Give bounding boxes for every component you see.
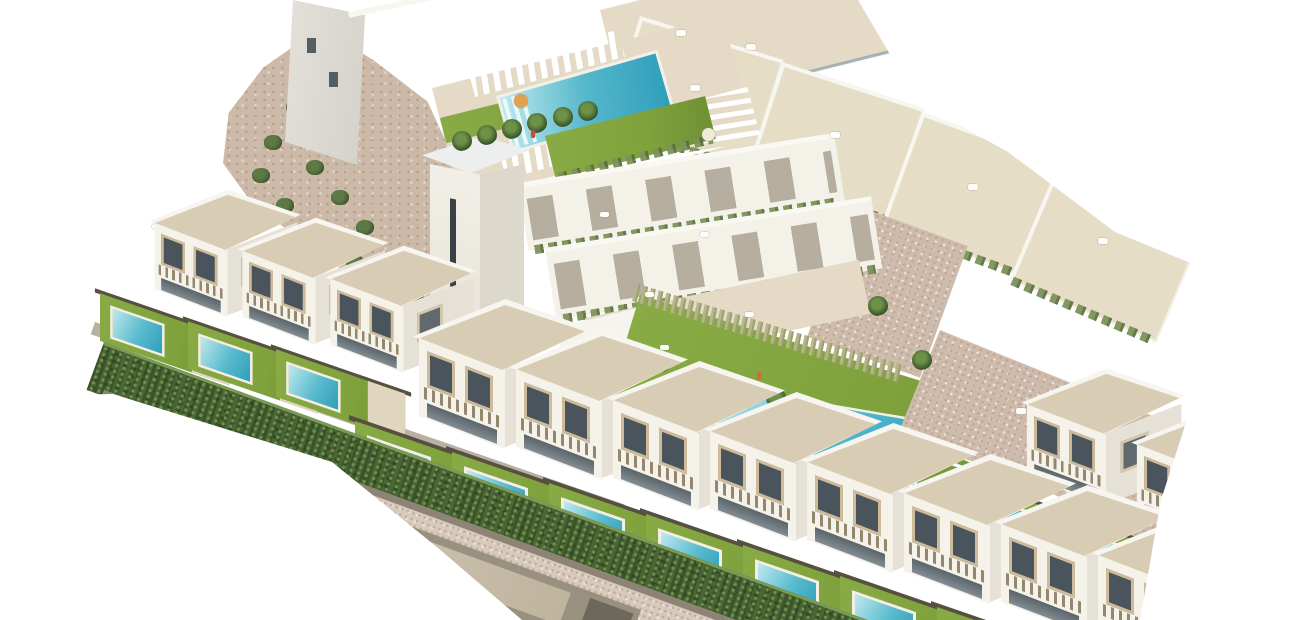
hanging-plants (1011, 277, 1156, 345)
palm-tree-icon (868, 296, 888, 316)
terrace-furniture (745, 312, 754, 317)
garage-opening (577, 598, 634, 620)
palm-tree-icon (912, 350, 932, 370)
terrace-furniture (830, 132, 840, 138)
shrub-icon (306, 160, 324, 175)
shrub-icon (252, 168, 270, 183)
terrace-furniture (1098, 238, 1108, 244)
main-apartment-facade (348, 0, 643, 18)
private-plunge-pool (286, 361, 340, 413)
townhouse-window (1144, 583, 1172, 620)
townhouse-side-window (1231, 471, 1259, 513)
side-wall-window (307, 38, 316, 53)
parasol-icon (702, 128, 715, 141)
terrace-furniture (645, 292, 654, 297)
palm-tree-icon (578, 101, 598, 121)
shrub-icon (331, 190, 349, 205)
person-figure (531, 130, 535, 138)
render-canvas (0, 0, 1290, 620)
palm-tree-icon (452, 131, 472, 151)
main-apartment-side-wall (285, 0, 365, 165)
townhouse-side-window (1200, 584, 1230, 620)
palm-tree-icon (477, 125, 497, 145)
parasol-icon (514, 94, 528, 108)
palm-tree-icon (527, 113, 547, 133)
terrace-furniture (968, 184, 978, 190)
townhouse (1034, 520, 1269, 620)
private-plunge-pool (198, 333, 252, 385)
terrace-furniture (676, 30, 686, 36)
terrace-furniture (746, 44, 756, 50)
side-wall-window (329, 72, 338, 87)
palm-tree-icon (553, 107, 573, 127)
terrace-furniture (690, 85, 700, 91)
palm-tree-icon (502, 119, 522, 139)
shrub-icon (264, 135, 282, 150)
terrace-furniture (600, 212, 609, 217)
terrace-furniture (700, 232, 709, 237)
